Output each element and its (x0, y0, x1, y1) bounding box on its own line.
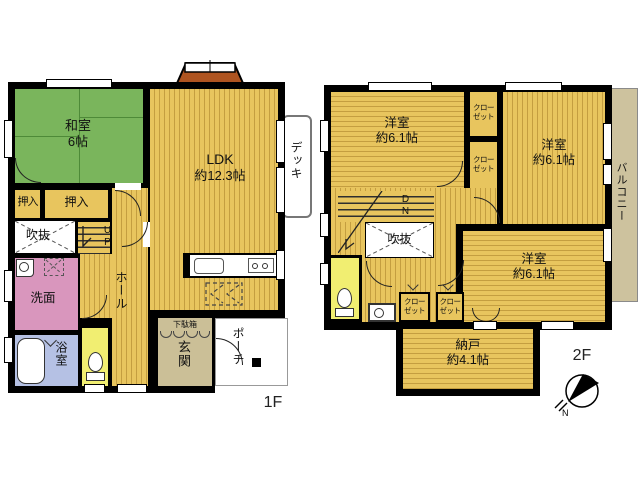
deck-label: デッキ (290, 141, 302, 180)
storage-label: 納戸 約4.1帖 (418, 338, 518, 368)
window (276, 120, 285, 163)
ldk-label: LDK 約12.3帖 (170, 151, 270, 183)
porch-marker (252, 358, 261, 367)
stairs-down-label: DN (400, 194, 410, 218)
floor1-label: 1F (256, 393, 290, 412)
closet-upper-1-label: クロー ゼット (470, 103, 497, 121)
washer-pan-icon (16, 259, 34, 277)
bedroom-ne-label: 洋室 約6.1帖 (504, 138, 604, 168)
compass-icon: N (552, 366, 618, 418)
toilet-tank-icon-1f (86, 372, 105, 381)
bedroom-se-label: 洋室 約6.1帖 (484, 252, 584, 282)
bedroom-ne-size: 約6.1帖 (533, 153, 575, 167)
window (320, 120, 329, 152)
window (84, 384, 105, 393)
closet-label-line1: クロー (473, 155, 494, 164)
void-label-1f: 吹抜 (17, 228, 59, 242)
bathtub-icon (17, 338, 45, 384)
closet-lower-2-label: クロー ゼット (436, 297, 464, 315)
entrance-label: 玄関 (177, 340, 190, 368)
window (276, 250, 285, 280)
toilet-bowl-icon-2f (337, 288, 352, 308)
closet-label-line1: クロー (473, 103, 494, 112)
kitchen-sink-icon (194, 258, 224, 274)
window (4, 337, 13, 363)
storage-size: 約4.1帖 (447, 353, 489, 367)
oshiire-right-label: 押入 (45, 195, 108, 209)
ldk-size: 約12.3帖 (194, 168, 245, 183)
porch-label: ポーチ (232, 327, 244, 366)
window (46, 79, 112, 88)
washer-pan-drain-icon (19, 262, 29, 272)
closet-label-line2: ゼット (473, 164, 494, 173)
bedroom-se-size: 約6.1帖 (513, 267, 555, 281)
closet-upper-2-label: クロー ゼット (470, 155, 497, 173)
closet-lower-1-label: クロー ゼット (399, 297, 430, 315)
bedroom-nw-label: 洋室 約6.1帖 (347, 116, 447, 146)
washitsu-name: 和室 (65, 118, 91, 133)
toilet-bowl-icon-1f (88, 352, 103, 372)
shoe-cabinet-label: 下駄箱 (158, 320, 212, 330)
toilet-tank-icon-2f (335, 308, 354, 317)
closet-label-line1: クロー (440, 297, 461, 306)
wash-basin-2f (368, 303, 396, 322)
window (541, 321, 574, 330)
window (320, 263, 329, 285)
washroom-label: 洗面 (18, 291, 68, 306)
dining-table-dashed-icon (205, 282, 243, 306)
window (320, 213, 329, 237)
stairs-up-label: UP (102, 225, 112, 249)
window (603, 164, 612, 185)
floor2-label: 2F (565, 346, 599, 365)
floor-plan-canvas: 和室 6帖 LDK 約12.3帖 デッキ 押入 押入 吹抜 UP ホール 洗面 … (0, 0, 640, 480)
window (4, 120, 13, 158)
closet-label-line1: クロー (404, 297, 425, 306)
bedroom-ne-name: 洋室 (541, 138, 566, 152)
bedroom-nw-name: 洋室 (384, 116, 409, 130)
washitsu-label: 和室 6帖 (45, 118, 111, 149)
burner-icon (262, 263, 268, 269)
closet-label-line2: ゼット (473, 112, 494, 121)
basin-bowl-icon (374, 308, 384, 318)
closet-label-line2: ゼット (404, 306, 425, 315)
burner-icon (252, 263, 258, 269)
window (505, 82, 562, 91)
oshiire-left-label: 押入 (15, 196, 40, 209)
ldk-name: LDK (206, 151, 233, 167)
balcony-label: バルコニー (615, 162, 626, 222)
window (4, 270, 13, 302)
kitchen-counter-end (183, 253, 190, 278)
bathroom-label: 浴室 (55, 341, 67, 367)
washing-machine-icon (44, 258, 64, 276)
window (603, 123, 612, 160)
window (117, 384, 147, 393)
door-gap (115, 183, 141, 190)
washitsu-size: 6帖 (68, 134, 88, 149)
hall-label: ホール (115, 271, 127, 310)
window (473, 321, 497, 330)
compass-north-label: N (562, 408, 569, 418)
bedroom-nw-size: 約6.1帖 (376, 131, 418, 145)
window (603, 228, 612, 262)
stove-icon (248, 258, 274, 273)
bedroom-se-name: 洋室 (521, 252, 546, 266)
storage-name: 納戸 (455, 338, 480, 352)
void-label-2f: 吹抜 (365, 232, 434, 246)
window (276, 167, 285, 213)
closet-label-line2: ゼット (440, 306, 461, 315)
window (368, 82, 432, 91)
